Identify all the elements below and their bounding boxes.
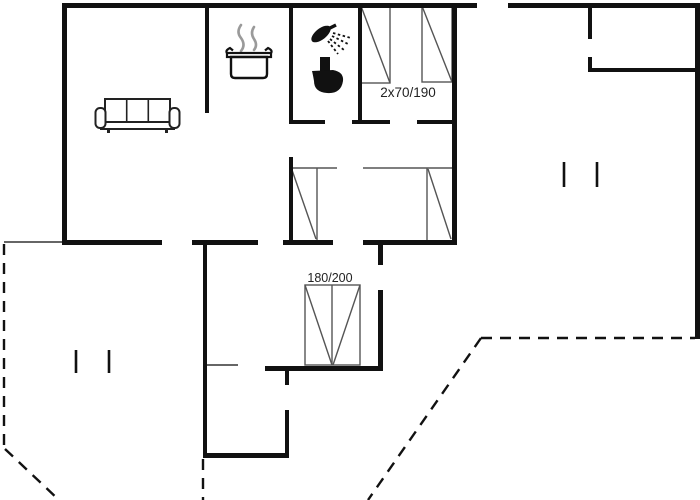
bathroom-left-wall xyxy=(289,3,293,122)
sofa-icon xyxy=(96,99,180,133)
double-bedroom-right-wall xyxy=(378,290,383,370)
single-bed-2 xyxy=(422,6,452,82)
double-bed-180x200 xyxy=(305,285,360,365)
alcove-bed-left xyxy=(291,168,337,240)
alcove-bed-right xyxy=(363,168,452,240)
steam-wisp xyxy=(252,27,256,50)
sofa-back xyxy=(105,99,170,122)
sofa-seat xyxy=(101,122,174,129)
terrace-boundary-southwest-diagonal xyxy=(5,449,59,500)
sofa-foot xyxy=(165,129,168,133)
bed-size-label-double: 180/200 xyxy=(307,271,352,285)
toilet-bowl xyxy=(312,70,343,93)
bathroom-right-wall xyxy=(358,3,362,122)
bedroom1-right-wall xyxy=(452,3,457,245)
sofa-foot xyxy=(107,129,110,133)
double-bedroom-bottom-wall xyxy=(265,366,383,371)
alcove-bed-right-line xyxy=(428,169,451,239)
south-wall-a xyxy=(62,240,162,245)
hallway-left-wall xyxy=(203,240,207,458)
single-bed-1 xyxy=(361,6,390,83)
toilet-cistern xyxy=(320,57,330,72)
shower-spray xyxy=(333,33,351,38)
double-bedroom-right-stub xyxy=(378,245,383,265)
bottom-room-right-wall xyxy=(285,410,289,457)
bed-size-label-top: 2x70/190 xyxy=(380,85,436,100)
shower-spray xyxy=(328,41,338,54)
toilet-icon xyxy=(312,57,343,93)
annex-wall-upper xyxy=(588,3,592,39)
south-wall-b xyxy=(192,240,258,245)
single-bed-1-line xyxy=(361,6,390,83)
double-bed-180x200-line xyxy=(333,285,360,365)
exterior-top-wall-right xyxy=(508,3,700,8)
steam-wisp xyxy=(239,25,244,51)
exterior-top-wall-left xyxy=(62,3,477,8)
pot-body xyxy=(231,57,267,78)
kitchen-partition-wall xyxy=(205,3,209,113)
bedroom1-bottom-wall-right xyxy=(417,120,452,124)
terrace-boundary-east-diagonal xyxy=(368,338,481,500)
double-bed-180x200-line xyxy=(305,285,332,365)
annex-bottom-wall xyxy=(588,68,700,72)
alcove-left-wall xyxy=(289,157,293,244)
shower-icon xyxy=(309,23,351,54)
bottom-room-bottom-wall xyxy=(203,453,289,458)
alcove-bed-left-line xyxy=(292,170,316,239)
bedroom1-bottom-wall-left xyxy=(352,120,390,124)
sofa-arm-left xyxy=(96,108,106,128)
shower-arm xyxy=(328,25,336,29)
floor-plan-canvas: 2x70/190180/200 xyxy=(0,0,700,500)
bathroom-bottom-wall xyxy=(289,120,325,124)
cooking-pot-icon xyxy=(226,25,271,78)
exterior-right-wall xyxy=(695,3,700,339)
single-bed-2-line xyxy=(422,6,452,82)
sofa-arm-right xyxy=(170,108,180,128)
exterior-left-wall xyxy=(62,3,67,245)
floor-plan: 2x70/190180/200 xyxy=(0,0,700,500)
south-wall-d xyxy=(363,240,457,245)
